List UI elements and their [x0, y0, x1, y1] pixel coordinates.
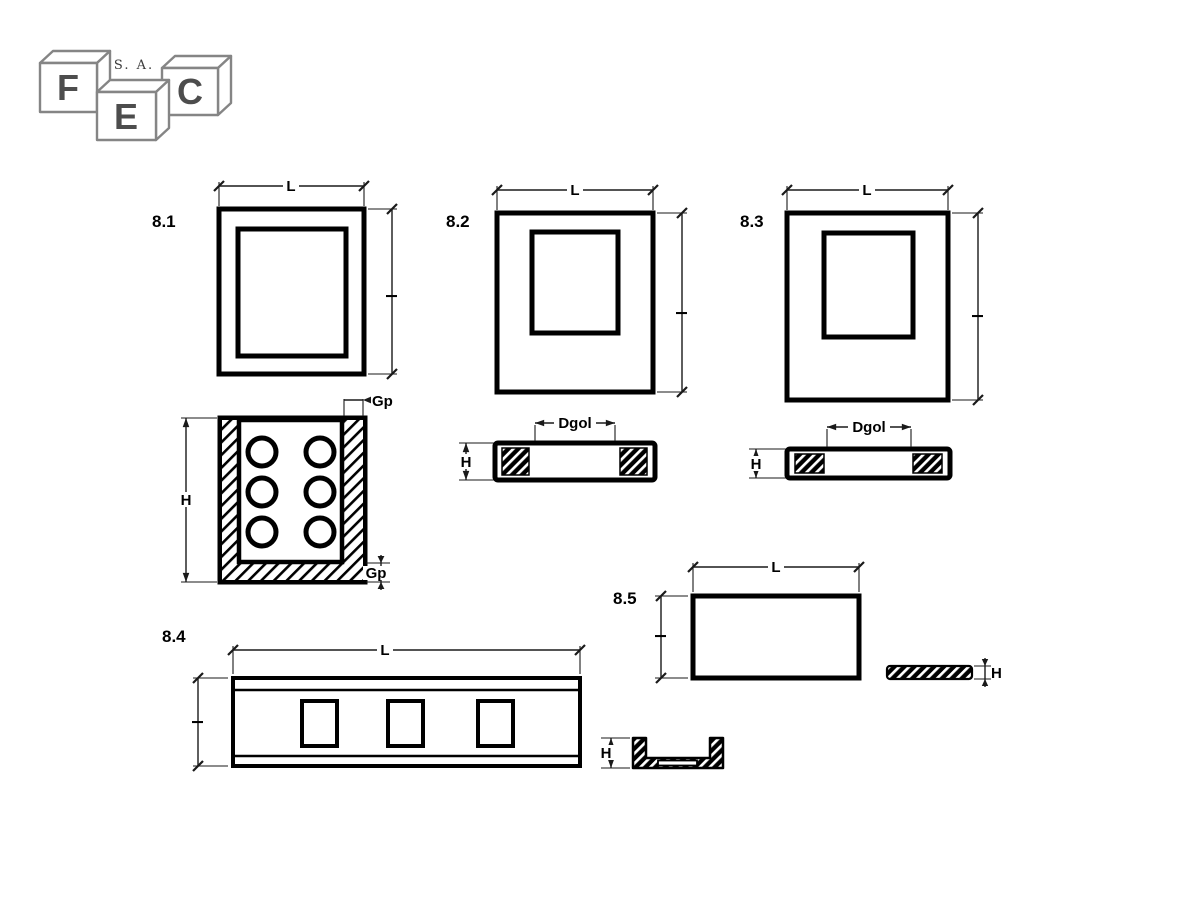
- hatch-right-wall: [342, 420, 363, 580]
- plan-view-8-5: [693, 596, 859, 678]
- hatch-left-block: [502, 448, 529, 475]
- dim-height-label: l: [674, 311, 691, 315]
- dim-height-8-2: l: [657, 208, 691, 397]
- dim-length-8-5: L: [688, 559, 864, 592]
- dim-gap-8-2: Dgol: [535, 415, 615, 441]
- drawing-canvas: F C E S. A. 8.1: [0, 0, 1200, 900]
- plan-view-8-1: [219, 209, 364, 374]
- dim-height-label: l: [190, 720, 207, 724]
- dim-plate-height: H: [974, 658, 1002, 687]
- logo-cube-c: C: [162, 56, 231, 115]
- logo-letter-e: E: [114, 96, 138, 137]
- channel-section-8-5: H: [598, 738, 723, 768]
- dim-gap-label: Dgol: [558, 415, 591, 432]
- figure-8-4: 8.4 L l: [162, 627, 585, 771]
- logo-suffix: S. A.: [114, 58, 154, 73]
- dim-channel-height-label: H: [601, 745, 612, 762]
- dim-gap-8-3: Dgol: [827, 419, 911, 447]
- dim-section-height-8-3: H: [748, 449, 786, 478]
- figure-8-4-label: 8.4: [162, 627, 186, 646]
- dim-length-label: L: [862, 182, 871, 199]
- figure-8-1: 8.1 L l: [152, 178, 401, 590]
- opening-squares: [302, 701, 513, 746]
- company-logo: F C E S. A.: [40, 51, 231, 140]
- hatch-right-block: [913, 454, 942, 473]
- dim-height-8-4: l: [190, 673, 228, 771]
- figure-8-5-label: 8.5: [613, 589, 637, 608]
- section-view-8-2: [495, 443, 655, 480]
- logo-cube-e: E: [97, 80, 169, 140]
- figure-8-3-label: 8.3: [740, 212, 764, 231]
- dim-section-height-8-1: H: [178, 418, 217, 582]
- dim-section-height-label: H: [461, 454, 472, 471]
- elevation-view-8-4: [233, 678, 580, 766]
- dim-section-height-8-2: H: [458, 443, 494, 480]
- dim-height-8-3: l: [952, 208, 987, 405]
- plate-section-8-5: H: [887, 658, 1002, 687]
- dim-section-height-label: H: [751, 456, 762, 473]
- dim-length-8-4: L: [228, 642, 585, 674]
- dim-section-height-label: H: [181, 492, 192, 509]
- figure-8-5: 8.5 L l: [598, 559, 1002, 768]
- dim-plate-height-label: H: [991, 665, 1002, 682]
- dim-length-label: L: [380, 642, 389, 659]
- dim-wall-label: Gp: [372, 393, 393, 410]
- figure-8-3: 8.3 L l: [740, 182, 987, 478]
- hatch-floor: [222, 562, 363, 580]
- technical-drawing-sheet: F C E S. A. 8.1: [0, 0, 1200, 900]
- logo-letter-f: F: [57, 67, 79, 108]
- figure-8-2: 8.2 L l: [446, 182, 691, 480]
- dim-length-label: L: [570, 182, 579, 199]
- hatch-right-block: [620, 448, 647, 475]
- plan-view-8-3: [787, 213, 948, 400]
- hatch-left-wall: [222, 420, 239, 580]
- dim-length-8-2: L: [492, 182, 658, 210]
- logo-letter-c: C: [177, 71, 203, 112]
- dim-length-label: L: [286, 178, 295, 195]
- section-view-8-1: [220, 418, 365, 582]
- plan-view-8-2: [497, 213, 653, 392]
- dim-channel-height: H: [598, 738, 630, 768]
- figure-8-1-label: 8.1: [152, 212, 176, 231]
- dim-height-label: l: [653, 634, 670, 638]
- dim-length-label: L: [771, 559, 780, 576]
- dim-length-8-3: L: [782, 182, 953, 210]
- dim-wall-thickness-top: Gp: [344, 393, 393, 416]
- dim-length-8-1: L: [214, 178, 369, 206]
- hatch-left-block: [795, 454, 824, 473]
- dim-height-label: l: [970, 314, 987, 318]
- dim-height-8-5: l: [653, 591, 688, 683]
- dim-gap-label: Dgol: [852, 419, 885, 436]
- dim-height-label: l: [384, 294, 401, 298]
- figure-8-2-label: 8.2: [446, 212, 470, 231]
- dim-height-8-1: l: [368, 204, 401, 379]
- dim-floor-label: Gp: [366, 565, 387, 582]
- section-view-8-3: [787, 449, 950, 478]
